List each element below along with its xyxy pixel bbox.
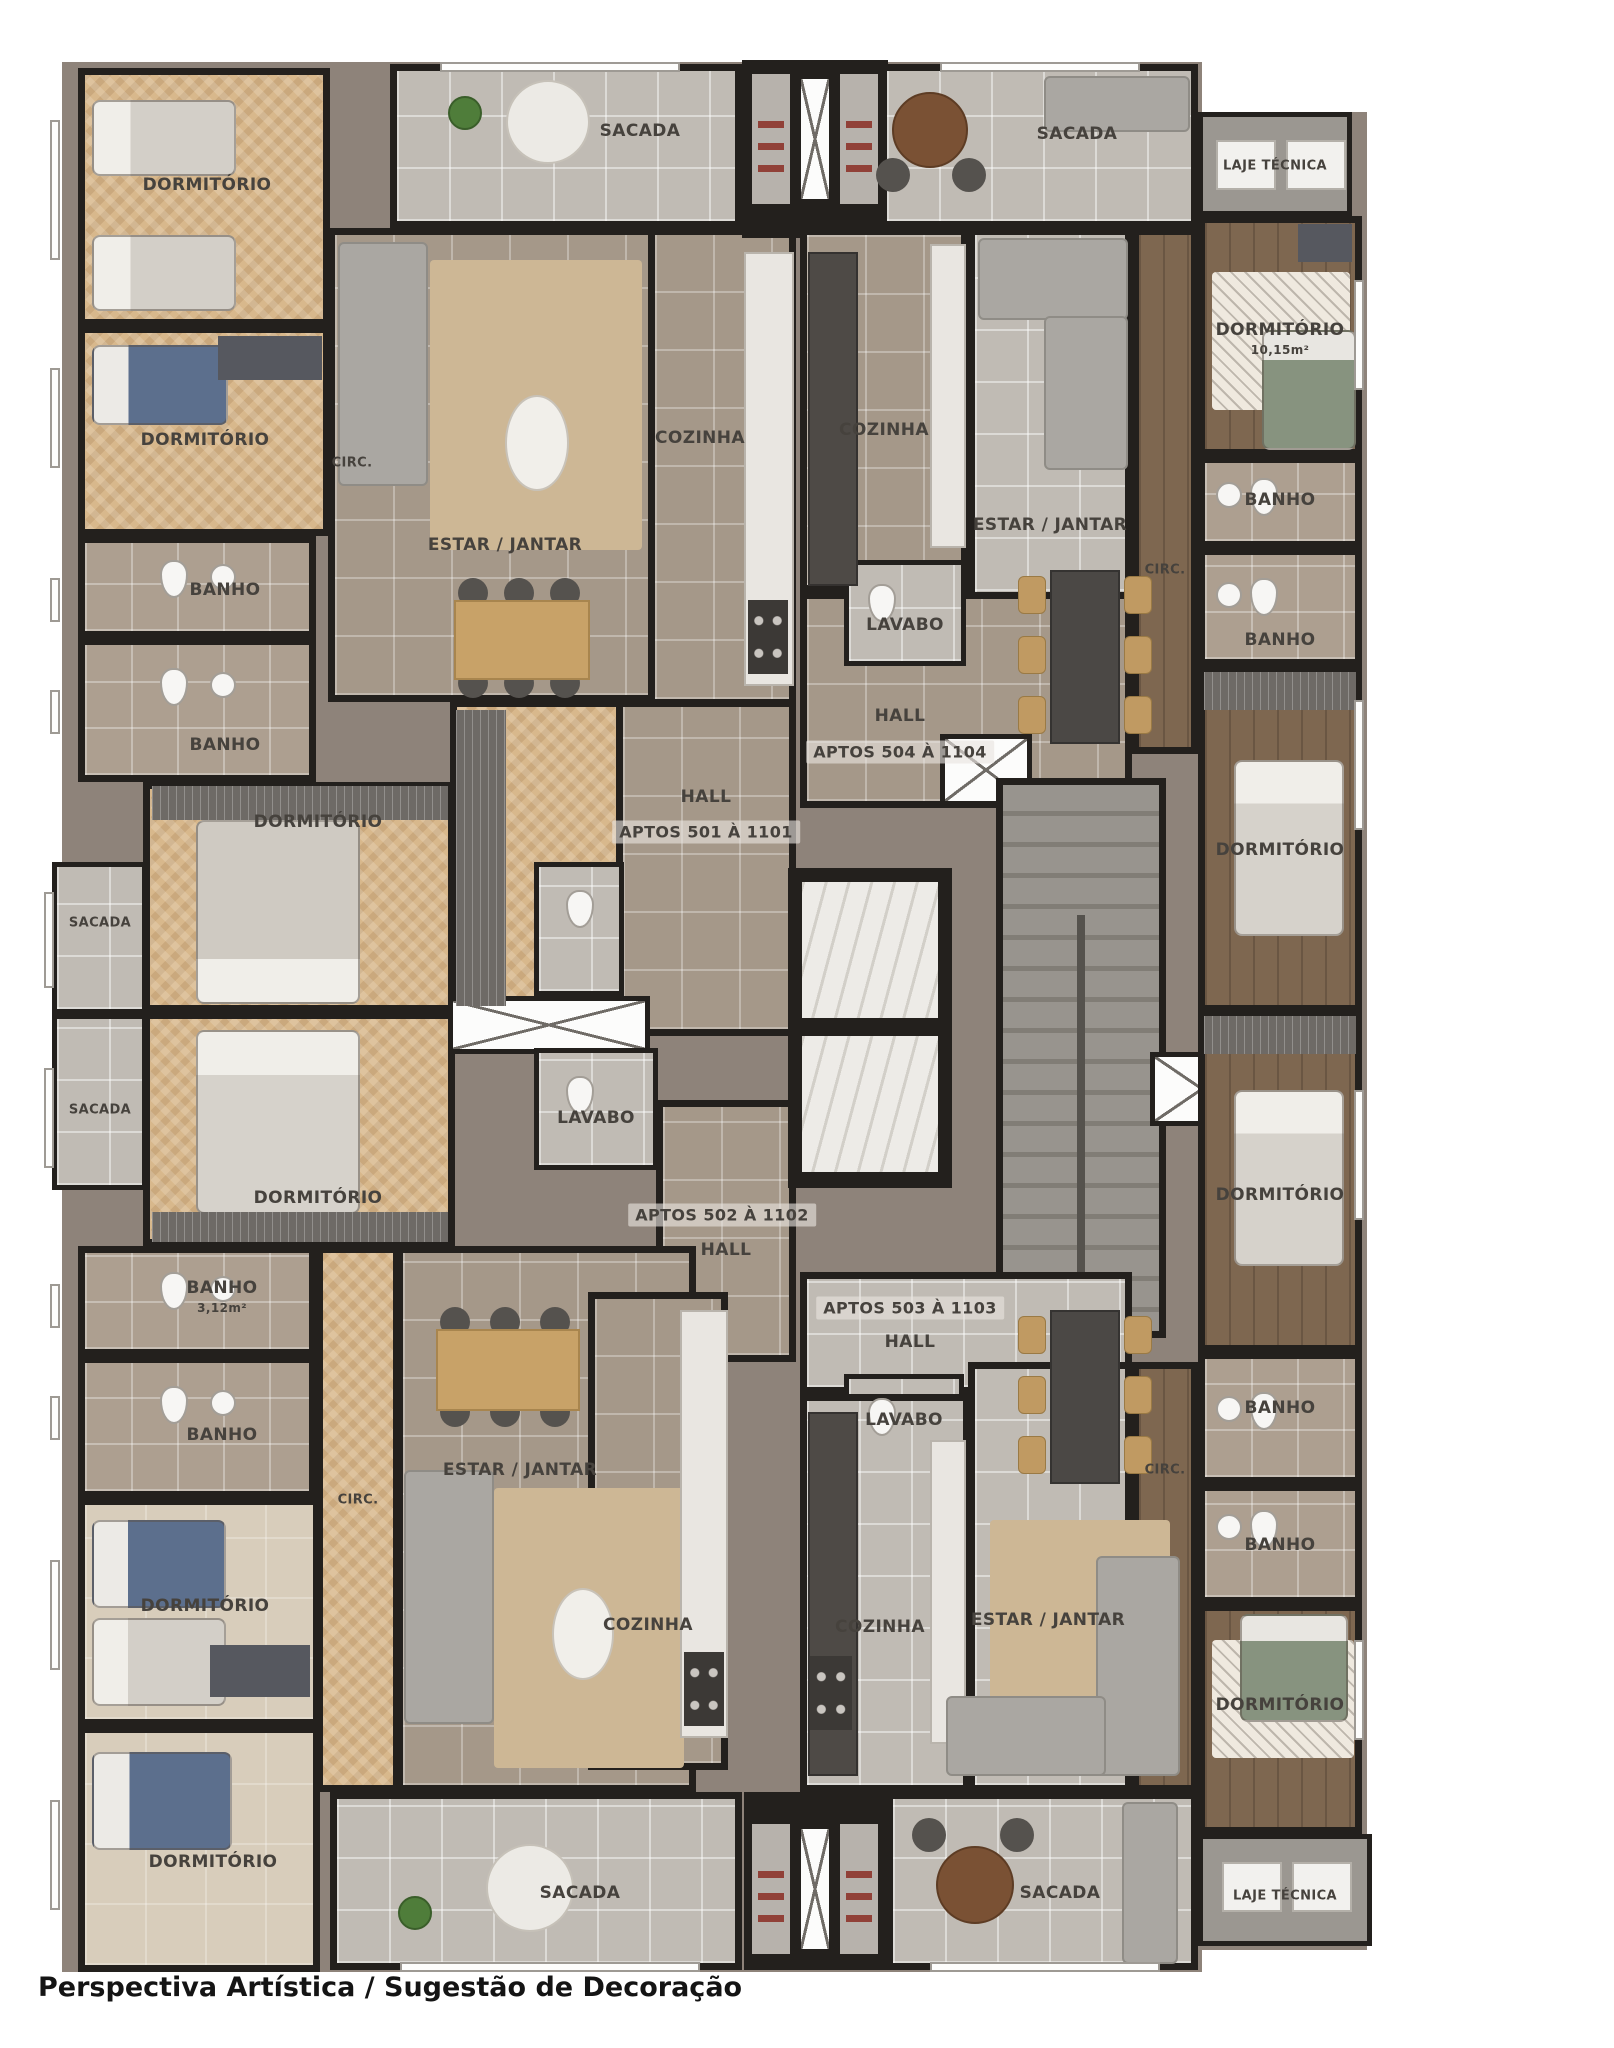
twin-bed	[92, 100, 236, 176]
chair-icon	[952, 158, 986, 192]
chair-icon	[1124, 636, 1152, 674]
label-aptos-504: APTOS 504 À 1104	[806, 741, 994, 764]
balcony-table-wood	[892, 92, 968, 168]
dining-set	[420, 1305, 590, 1430]
label-cozinha: COZINHA	[655, 428, 745, 448]
label-banho: BANHO	[1244, 1398, 1315, 1418]
single-bed	[92, 1618, 226, 1706]
label-estar-jantar: ESTAR / JANTAR	[971, 1610, 1125, 1630]
label-banho: BANHO	[1244, 490, 1315, 510]
window	[1354, 1640, 1364, 1740]
sofa	[1096, 1556, 1180, 1776]
window	[44, 1068, 54, 1168]
dining-table	[1050, 570, 1120, 744]
label-banho: BANHO	[1244, 1535, 1315, 1555]
label-banho: BANHO	[186, 1278, 257, 1298]
label-dormitorio: DORMITÓRIO	[141, 430, 270, 450]
label-sacada: SACADA	[1020, 1883, 1101, 1903]
label-hall: HALL	[875, 706, 926, 726]
elevator-block-north	[742, 60, 888, 238]
window	[940, 62, 1140, 72]
chair-icon	[1018, 1436, 1046, 1474]
room-hall-501	[616, 700, 796, 1036]
sink	[1216, 582, 1242, 608]
label-circ: CIRC.	[332, 456, 373, 471]
label-banho: BANHO	[189, 735, 260, 755]
label-dormitorio: DORMITÓRIO	[254, 812, 383, 832]
stairs	[996, 778, 1166, 1338]
wardrobe	[1204, 672, 1356, 710]
label-laje-tecnica: LAJE TÉCNICA	[1233, 1889, 1337, 1904]
label-estar-jantar: ESTAR / JANTAR	[443, 1460, 597, 1480]
label-estar-jantar: ESTAR / JANTAR	[428, 535, 582, 555]
window	[50, 1284, 60, 1328]
label-cozinha: COZINHA	[835, 1617, 925, 1637]
label-lavabo: LAVABO	[865, 1410, 943, 1430]
label-sacada: SACADA	[69, 1103, 131, 1118]
kitchen-island	[930, 244, 966, 548]
sofa	[404, 1470, 494, 1724]
sink	[210, 1390, 236, 1416]
chair-icon	[1000, 1818, 1034, 1852]
wardrobe	[456, 710, 506, 1006]
single-bed	[92, 1752, 232, 1850]
window	[440, 62, 680, 72]
label-cozinha: COZINHA	[839, 420, 929, 440]
caption-text: Perspectiva Artística / Sugestão de Deco…	[38, 1972, 742, 2003]
plant-icon	[398, 1896, 432, 1930]
label-dormitorio: DORMITÓRIO	[149, 1852, 278, 1872]
wardrobe	[1204, 1016, 1356, 1054]
label-lavabo: LAVABO	[866, 615, 944, 635]
label-hall: HALL	[701, 1240, 752, 1260]
double-bed	[196, 1030, 360, 1214]
window	[930, 1962, 1160, 1972]
elevator-block-main	[788, 868, 952, 1188]
label-dormitorio: DORMITÓRIO	[1216, 320, 1345, 340]
label-banho-area: 3,12m²	[197, 1301, 247, 1315]
window	[50, 1800, 60, 1910]
room-banho-501b	[78, 638, 316, 782]
sofa	[978, 238, 1128, 320]
chair-icon	[1018, 696, 1046, 734]
label-aptos-503: APTOS 503 À 1103	[816, 1297, 1004, 1320]
label-dormitorio: DORMITÓRIO	[1216, 1185, 1345, 1205]
dining-table	[436, 1329, 580, 1411]
window	[1354, 280, 1364, 390]
window	[50, 1396, 60, 1440]
elevator-block-south	[744, 1792, 886, 1970]
elevator-shaft	[796, 1824, 834, 1954]
chair-icon	[1124, 1376, 1152, 1414]
label-banho: BANHO	[186, 1425, 257, 1445]
dining-table	[1050, 1310, 1120, 1484]
label-lavabo: LAVABO	[557, 1108, 635, 1128]
label-sacada: SACADA	[1037, 124, 1118, 144]
chair-icon	[1124, 696, 1152, 734]
label-banho: BANHO	[1244, 630, 1315, 650]
double-bed	[196, 820, 360, 1004]
elevator-car-marble	[796, 876, 944, 1024]
elevator-car	[752, 74, 790, 204]
elevator-car-marble	[796, 1030, 944, 1178]
twin-bed	[92, 235, 236, 311]
chair-icon	[876, 158, 910, 192]
desk	[210, 1645, 310, 1697]
window	[50, 1560, 60, 1670]
single-bed	[92, 1520, 226, 1608]
stove	[684, 1652, 724, 1726]
elevator-car	[840, 1824, 878, 1954]
desk	[218, 336, 322, 380]
dining-set	[1016, 1296, 1152, 1496]
plant-icon	[448, 96, 482, 130]
dining-set	[440, 578, 600, 698]
window	[50, 690, 60, 734]
label-sacada: SACADA	[540, 1883, 621, 1903]
label-laje-tecnica: LAJE TÉCNICA	[1223, 159, 1327, 174]
stove	[810, 1656, 852, 1730]
desk	[1298, 224, 1352, 262]
label-hall: HALL	[681, 787, 732, 807]
label-circ: CIRC.	[338, 1493, 379, 1508]
ac-unit	[1292, 1862, 1352, 1912]
label-sacada: SACADA	[600, 121, 681, 141]
kitchen-counter	[808, 252, 858, 586]
room-lavabo-501	[534, 862, 624, 996]
window	[400, 1962, 700, 1972]
label-estar-jantar: ESTAR / JANTAR	[973, 515, 1127, 535]
chair-icon	[1018, 1376, 1046, 1414]
window	[1354, 700, 1364, 830]
chair-icon	[1124, 1316, 1152, 1354]
sink	[210, 672, 236, 698]
double-bed	[1234, 1090, 1344, 1266]
sink	[1216, 482, 1242, 508]
single-bed	[92, 345, 228, 425]
coffee-table	[505, 395, 569, 491]
chair-icon	[1018, 576, 1046, 614]
floor-plan-canvas: DORMITÓRIO DORMITÓRIO CIRC. BANHO BANHO …	[0, 0, 1614, 2048]
chair-icon	[1124, 576, 1152, 614]
window	[50, 578, 60, 622]
label-banho: BANHO	[189, 580, 260, 600]
corridor-circ-502	[316, 1246, 400, 1792]
dining-table	[454, 600, 590, 680]
balcony-table	[506, 80, 590, 164]
label-dormitorio-area: 10,15m²	[1251, 343, 1310, 357]
label-circ: CIRC.	[1145, 1463, 1186, 1478]
label-dormitorio: DORMITÓRIO	[141, 1596, 270, 1616]
window	[1354, 1090, 1364, 1220]
sink	[1216, 1514, 1242, 1540]
wardrobe	[152, 1212, 448, 1242]
sofa	[338, 242, 428, 486]
elevator-car	[840, 74, 878, 204]
label-dormitorio: DORMITÓRIO	[254, 1188, 383, 1208]
label-aptos-502: APTOS 502 À 1102	[628, 1204, 816, 1227]
label-dormitorio: DORMITÓRIO	[1216, 840, 1345, 860]
elevator-shaft	[796, 74, 834, 204]
window	[50, 368, 60, 468]
sofa	[946, 1696, 1106, 1776]
dining-set	[1016, 556, 1152, 756]
balcony-sofa	[1122, 1802, 1178, 1964]
ac-unit	[1222, 1862, 1282, 1912]
sofa	[1044, 316, 1128, 470]
label-dormitorio: DORMITÓRIO	[1216, 1695, 1345, 1715]
window	[44, 892, 54, 988]
chair-icon	[1018, 636, 1046, 674]
sink	[1216, 1396, 1242, 1422]
label-dormitorio: DORMITÓRIO	[143, 175, 272, 195]
elevator-car	[752, 1824, 790, 1954]
label-aptos-501: APTOS 501 À 1101	[612, 821, 800, 844]
stove	[748, 600, 788, 674]
label-hall: HALL	[885, 1332, 936, 1352]
label-cozinha: COZINHA	[603, 1615, 693, 1635]
window	[50, 120, 60, 260]
balcony-table-wood	[936, 1846, 1014, 1924]
label-circ: CIRC.	[1145, 563, 1186, 578]
room-sacada-left-1	[52, 862, 147, 1014]
chair-icon	[1018, 1316, 1046, 1354]
room-lavabo-504	[844, 560, 966, 666]
label-sacada: SACADA	[69, 916, 131, 931]
chair-icon	[912, 1818, 946, 1852]
